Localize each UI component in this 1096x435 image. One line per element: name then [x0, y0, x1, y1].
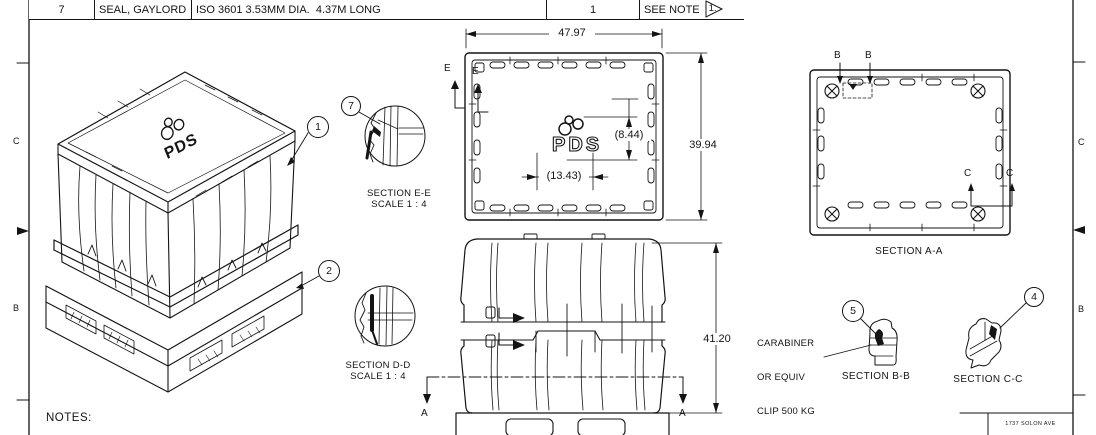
zone-center-arrow-left: [17, 227, 29, 235]
dim-depth-lines: [666, 53, 707, 220]
front-pallet: [456, 413, 669, 435]
bom-see-note: SEE NOTE: [644, 4, 700, 16]
bom-item-no: 7: [29, 0, 95, 19]
cut-label-b2: B: [865, 50, 872, 61]
front-view: [423, 234, 722, 435]
section-aa-title: SECTION A-A: [864, 246, 954, 257]
zone-letter-left-c: C: [13, 136, 20, 146]
top-view-pds-logo: PDS: [552, 116, 602, 156]
section-dd-title: SECTION D-D: [333, 360, 423, 371]
title-block-address: 1737 SOLON AVE: [988, 421, 1073, 427]
dim-logo-offset-x: (13.43): [539, 170, 589, 182]
cut-label-a2: A: [679, 408, 686, 419]
bom-description: ISO 3601 3.53MM DIA. 4.37M LONG: [192, 0, 547, 19]
bom-qty: 1: [547, 0, 640, 19]
zone-letter-left-b: B: [13, 303, 19, 313]
carabiner-clip: [875, 329, 884, 346]
bom-note-flag-number: 1.: [709, 3, 717, 14]
iso-lid-top: [58, 72, 295, 202]
cut-arrow-a2: [679, 394, 687, 404]
cut-label-c1: C: [964, 168, 971, 179]
carabiner-note-leader: [824, 345, 871, 357]
carabiner-note-line2: OR EQUIV: [757, 372, 815, 383]
balloon-item-1: 1: [307, 116, 329, 138]
iso-belt: [54, 225, 298, 307]
section-cc-detail: [966, 303, 1026, 368]
bom-part-name: SEAL, GAYLORD: [95, 0, 192, 19]
bom-note-cell: SEE NOTE 1.: [640, 0, 744, 19]
section-ee-scale: SCALE 1 : 4: [354, 199, 444, 210]
balloon-item-4: 4: [1024, 287, 1044, 307]
zone-letter-right-b: B: [1078, 304, 1084, 314]
drawing-sheet: PDS: [0, 0, 1096, 435]
balloon-item-2: 2: [318, 260, 340, 282]
section-bb-detail: [824, 319, 897, 365]
isometric-view: PDS: [46, 72, 319, 392]
seal-cross-section: [372, 126, 381, 137]
front-belt: [461, 322, 665, 340]
cut-line-cc: [971, 190, 1012, 206]
dim-height: 41.20: [696, 333, 738, 345]
zone-center-arrow-right: [1073, 226, 1085, 234]
iso-pallet: [46, 272, 302, 350]
sheet-border: [17, 0, 1085, 435]
section-ee-title: SECTION E-E: [354, 188, 444, 199]
cut-arrow-b1: [837, 76, 843, 84]
cut-arrow-d2: [513, 340, 525, 350]
dim-width: 47.97: [549, 27, 595, 39]
cut-arrow-c1: [968, 183, 974, 191]
iso-body-edges: [58, 141, 295, 318]
carabiner-note-line3: CLIP 500 KG: [757, 406, 815, 417]
section-dd-detail: [355, 286, 415, 346]
top-view: PDS: [451, 29, 707, 220]
section-aa-view: [810, 63, 1015, 235]
carabiner-note: CARABINER OR EQUIV CLIP 500 KG CAPACITY: [757, 316, 815, 435]
bom-table-row: 7 SEAL, GAYLORD ISO 3601 3.53MM DIA. 4.3…: [29, 0, 744, 20]
cut-label-e2: E: [472, 66, 479, 77]
iso-logo-text: PDS: [162, 129, 200, 163]
cut-label-c2: C: [1006, 168, 1013, 179]
cut-arrow-e1: [451, 80, 459, 89]
top-view-logo-text: PDS: [552, 134, 602, 156]
section-bb-title: SECTION B-B: [831, 371, 921, 382]
iso-pds-logo: PDS: [154, 109, 201, 163]
drawing-line-art: PDS: [0, 0, 1096, 435]
cut-label-e1: E: [444, 63, 451, 74]
cut-arrow-e2: [474, 84, 482, 93]
section-dd-scale: SCALE 1 : 4: [333, 371, 423, 382]
bom-note-flag: 1.: [704, 0, 724, 19]
dim-logo-offset-y: (8.44): [607, 129, 651, 141]
carabiner-note-line1: CARABINER: [757, 338, 815, 349]
cut-label-b1: B: [834, 50, 841, 61]
dim-depth: 39.94: [683, 139, 723, 151]
cut-label-a1: A: [421, 408, 428, 419]
notes-heading: NOTES:: [46, 412, 92, 424]
balloon-item-5: 5: [842, 300, 864, 322]
balloon-item-7: 7: [341, 96, 361, 116]
corner-latch-marks: [825, 84, 985, 221]
zone-letter-right-c: C: [1078, 137, 1085, 147]
cut-arrow-a1: [423, 394, 431, 404]
section-cc-title: SECTION C-C: [943, 374, 1033, 385]
section-ee-detail: [359, 106, 425, 166]
